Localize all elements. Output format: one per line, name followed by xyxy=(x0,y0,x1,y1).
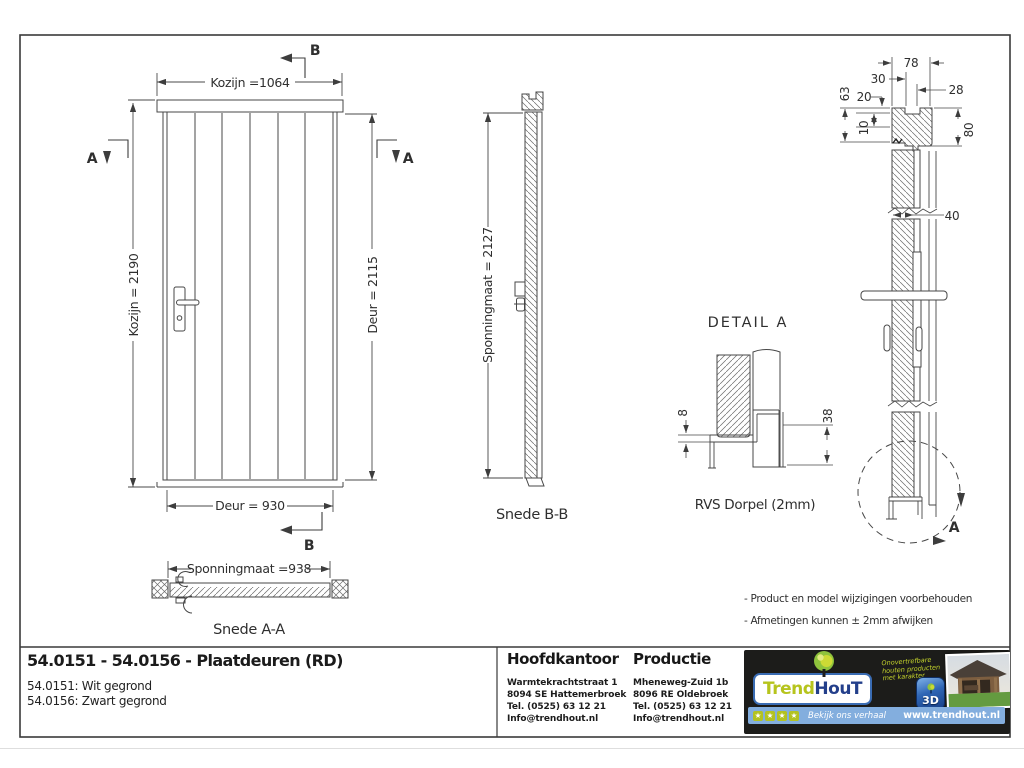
address-line: Warmtekrachtstraat 1 xyxy=(507,677,626,689)
website-link[interactable]: www.trendhout.nl xyxy=(903,710,1000,721)
dim-deur-height: Deur = 2115 xyxy=(365,256,380,333)
side-dim-10: 10 xyxy=(857,121,871,136)
address-line: Mheneweg-Zuid 1b xyxy=(633,677,732,689)
address-line: 8096 RE Oldebroek xyxy=(633,689,732,701)
detail-a-dim-38: 38 xyxy=(821,409,835,424)
cut-label-a-left: A xyxy=(87,151,98,167)
side-dim-78: 78 xyxy=(904,56,919,70)
dim-sponningmaat-bb: Sponningmaat = 2127 xyxy=(480,227,495,363)
3d-icon-label: 3D xyxy=(922,695,939,707)
trendhout-brand-box: TrendHouT Onovertrefbare houten producte… xyxy=(744,650,1010,734)
detail-a-caption: RVS Dorpel (2mm) xyxy=(695,497,816,513)
address-line: Tel. (0525) 63 12 21 xyxy=(507,701,626,713)
hoofdkantoor-heading: Hoofdkantoor xyxy=(507,650,619,668)
variant-white: 54.0151: Wit gegrond xyxy=(27,679,152,693)
note-2: - Afmetingen kunnen ± 2mm afwijken xyxy=(744,615,933,627)
page-edge-line xyxy=(0,748,1024,749)
kozijn-head xyxy=(157,100,343,112)
label-snede-bb: Snede B-B xyxy=(496,507,568,523)
variant-black: 54.0156: Zwart gegrond xyxy=(27,694,167,708)
dim-deur-width: Deur = 930 xyxy=(215,498,285,513)
address-line: Tel. (0525) 63 12 21 xyxy=(633,701,732,713)
detail-a-dim-8: 8 xyxy=(676,409,690,416)
3d-app-icon: 3D xyxy=(916,677,945,710)
detail-a-title: DETAIL A xyxy=(708,315,789,331)
star-icon: ★ xyxy=(789,711,799,721)
dim-sponningmaat-aa: Sponningmaat =938 xyxy=(187,561,312,576)
dim-kozijn-height: Kozijn = 2190 xyxy=(126,253,141,336)
brand-strip: ★ ★ ★ ★ Bekijk ons verhaal www.trendhout… xyxy=(748,707,1005,724)
productie-heading: Productie xyxy=(633,650,711,668)
dim-kozijn-width: Kozijn =1064 xyxy=(210,75,290,90)
label-snede-aa: Snede A-A xyxy=(213,622,285,638)
side-dim-40: 40 xyxy=(945,209,960,223)
productie-address: Mheneweg-Zuid 1b 8096 RE Oldebroek Tel. … xyxy=(633,677,732,725)
front-view xyxy=(157,100,343,487)
gazebo-photo xyxy=(945,652,1010,710)
logo-text-trend: Trend xyxy=(763,679,814,699)
star-icon: ★ xyxy=(777,711,787,721)
side-dim-63: 63 xyxy=(838,87,852,102)
side-dim-30: 30 xyxy=(871,72,886,86)
side-dim-20: 20 xyxy=(857,90,872,104)
cut-label-a-right: A xyxy=(403,151,414,167)
hoofdkantoor-address: Warmtekrachtstraat 1 8094 SE Hattemerbro… xyxy=(507,677,626,725)
strip-tagline: Bekijk ons verhaal xyxy=(808,711,886,721)
side-dim-80: 80 xyxy=(962,123,976,138)
star-icon: ★ xyxy=(765,711,775,721)
address-line: 8094 SE Hattemerbroek xyxy=(507,689,626,701)
side-dim-28: 28 xyxy=(949,83,964,97)
note-1: - Product en model wijzigingen voorbehou… xyxy=(744,593,972,605)
detail-a xyxy=(678,350,833,469)
tree-icon xyxy=(806,650,842,677)
side-detail-ref-a: A xyxy=(949,520,960,536)
email-line: Info@trendhout.nl xyxy=(507,713,626,725)
cut-label-b-bottom: B xyxy=(304,538,314,554)
3d-icon-tree xyxy=(924,683,938,694)
cut-label-b-top: B xyxy=(310,43,320,59)
drawing-sheet: { "drawing": { "front": { "dim_top": "Ko… xyxy=(0,0,1024,768)
drawing-title: 54.0151 - 54.0156 - Plaatdeuren (RD) xyxy=(27,651,343,670)
trendhout-logo: TrendHouT xyxy=(753,673,872,705)
logo-text-hout: HouT xyxy=(814,679,862,699)
star-icon: ★ xyxy=(753,711,763,721)
email-line: Info@trendhout.nl xyxy=(633,713,732,725)
